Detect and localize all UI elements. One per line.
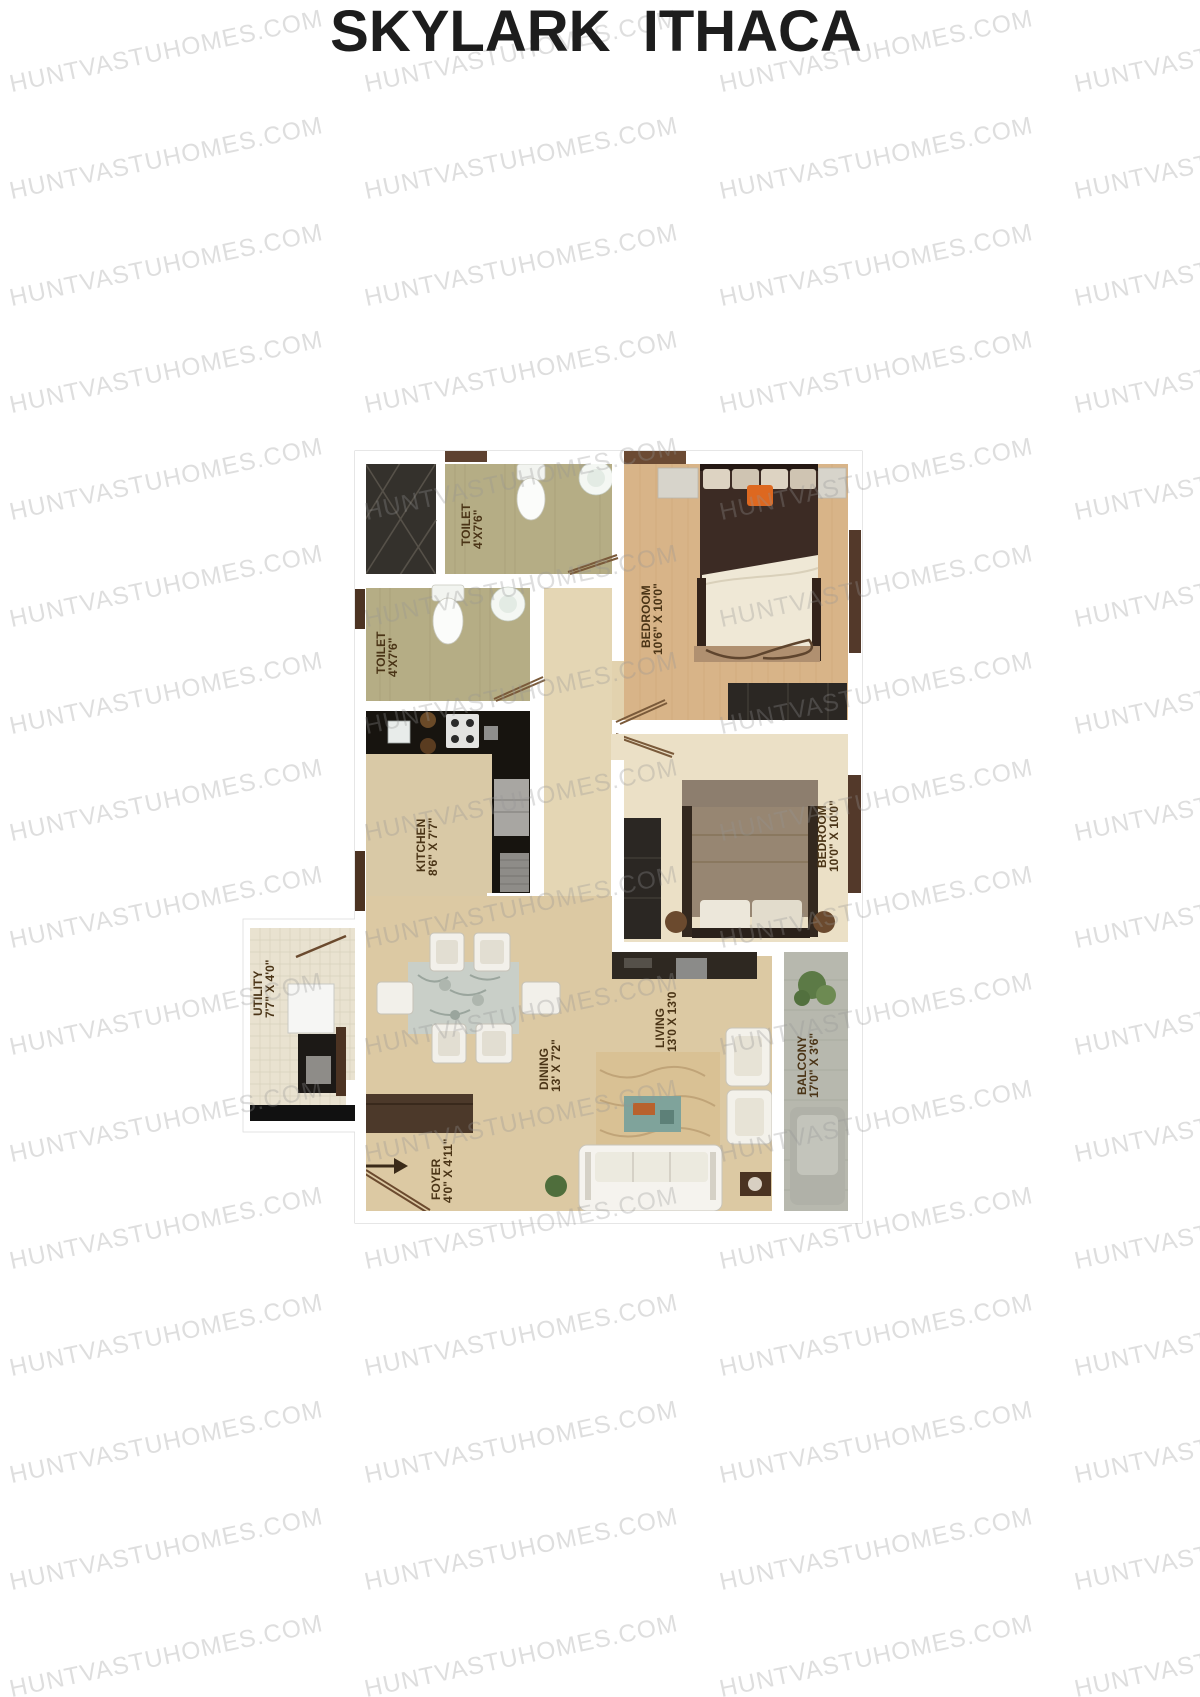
- svg-text:13'0 X 13'0: 13'0 X 13'0: [665, 991, 679, 1052]
- svg-text:4'X7'6": 4'X7'6": [471, 510, 485, 549]
- svg-text:4'X7'6": 4'X7'6": [386, 638, 400, 677]
- svg-text:13' X 7'2": 13' X 7'2": [549, 1039, 563, 1092]
- svg-text:10'6" X 10'0": 10'6" X 10'0": [651, 583, 665, 655]
